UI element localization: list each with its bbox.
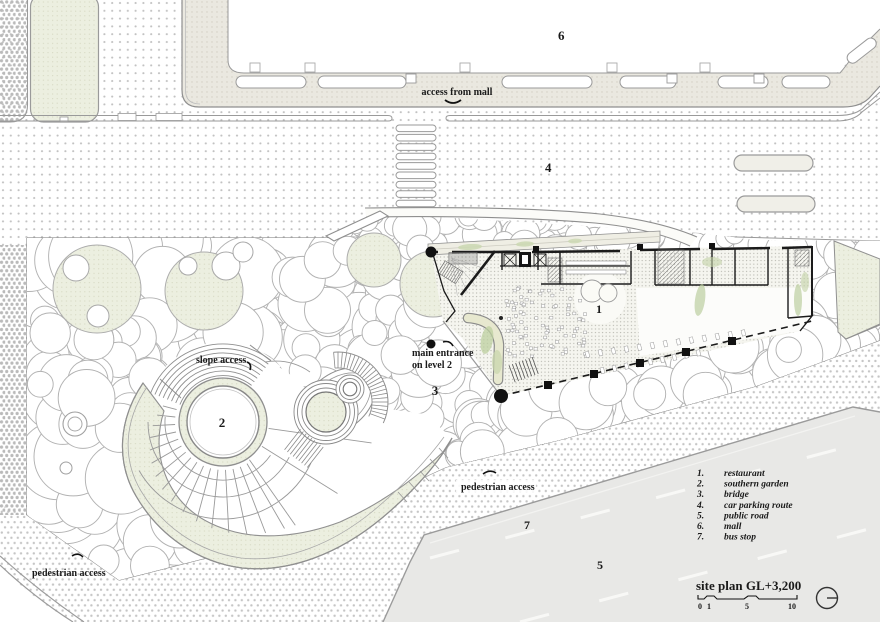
svg-text:0: 0 — [698, 602, 702, 611]
svg-text:public road: public road — [723, 511, 769, 521]
svg-text:bridge: bridge — [724, 490, 750, 500]
svg-text:pedestrian access: pedestrian access — [32, 568, 106, 579]
svg-text:5.: 5. — [697, 511, 704, 521]
svg-text:1: 1 — [707, 602, 711, 611]
svg-text:car parking route: car parking route — [724, 501, 793, 511]
svg-text:pedestrian access: pedestrian access — [461, 482, 535, 493]
svg-text:2: 2 — [219, 415, 226, 430]
svg-text:7: 7 — [524, 518, 530, 532]
svg-text:2.: 2. — [696, 480, 704, 490]
svg-text:6: 6 — [558, 28, 565, 43]
svg-text:slope access: slope access — [196, 355, 246, 366]
svg-text:access from mall: access from mall — [422, 87, 493, 98]
svg-text:4.: 4. — [696, 501, 704, 511]
svg-text:site plan GL+3,200: site plan GL+3,200 — [696, 578, 801, 593]
svg-text:7.: 7. — [697, 533, 704, 543]
svg-text:restaurant: restaurant — [724, 469, 765, 479]
svg-text:1.: 1. — [697, 469, 704, 479]
svg-text:southern garden: southern garden — [723, 480, 789, 490]
svg-text:4: 4 — [545, 160, 552, 175]
svg-text:3.: 3. — [696, 490, 704, 500]
svg-text:on level 2: on level 2 — [412, 360, 452, 371]
svg-text:bus stop: bus stop — [724, 533, 756, 543]
svg-text:1: 1 — [596, 302, 602, 316]
svg-text:5: 5 — [745, 602, 749, 611]
svg-text:5: 5 — [597, 558, 603, 572]
svg-text:10: 10 — [788, 602, 796, 611]
svg-text:6.: 6. — [697, 522, 704, 532]
svg-text:3: 3 — [432, 383, 439, 398]
svg-text:mall: mall — [724, 522, 742, 532]
svg-text:main entrance: main entrance — [412, 348, 474, 359]
